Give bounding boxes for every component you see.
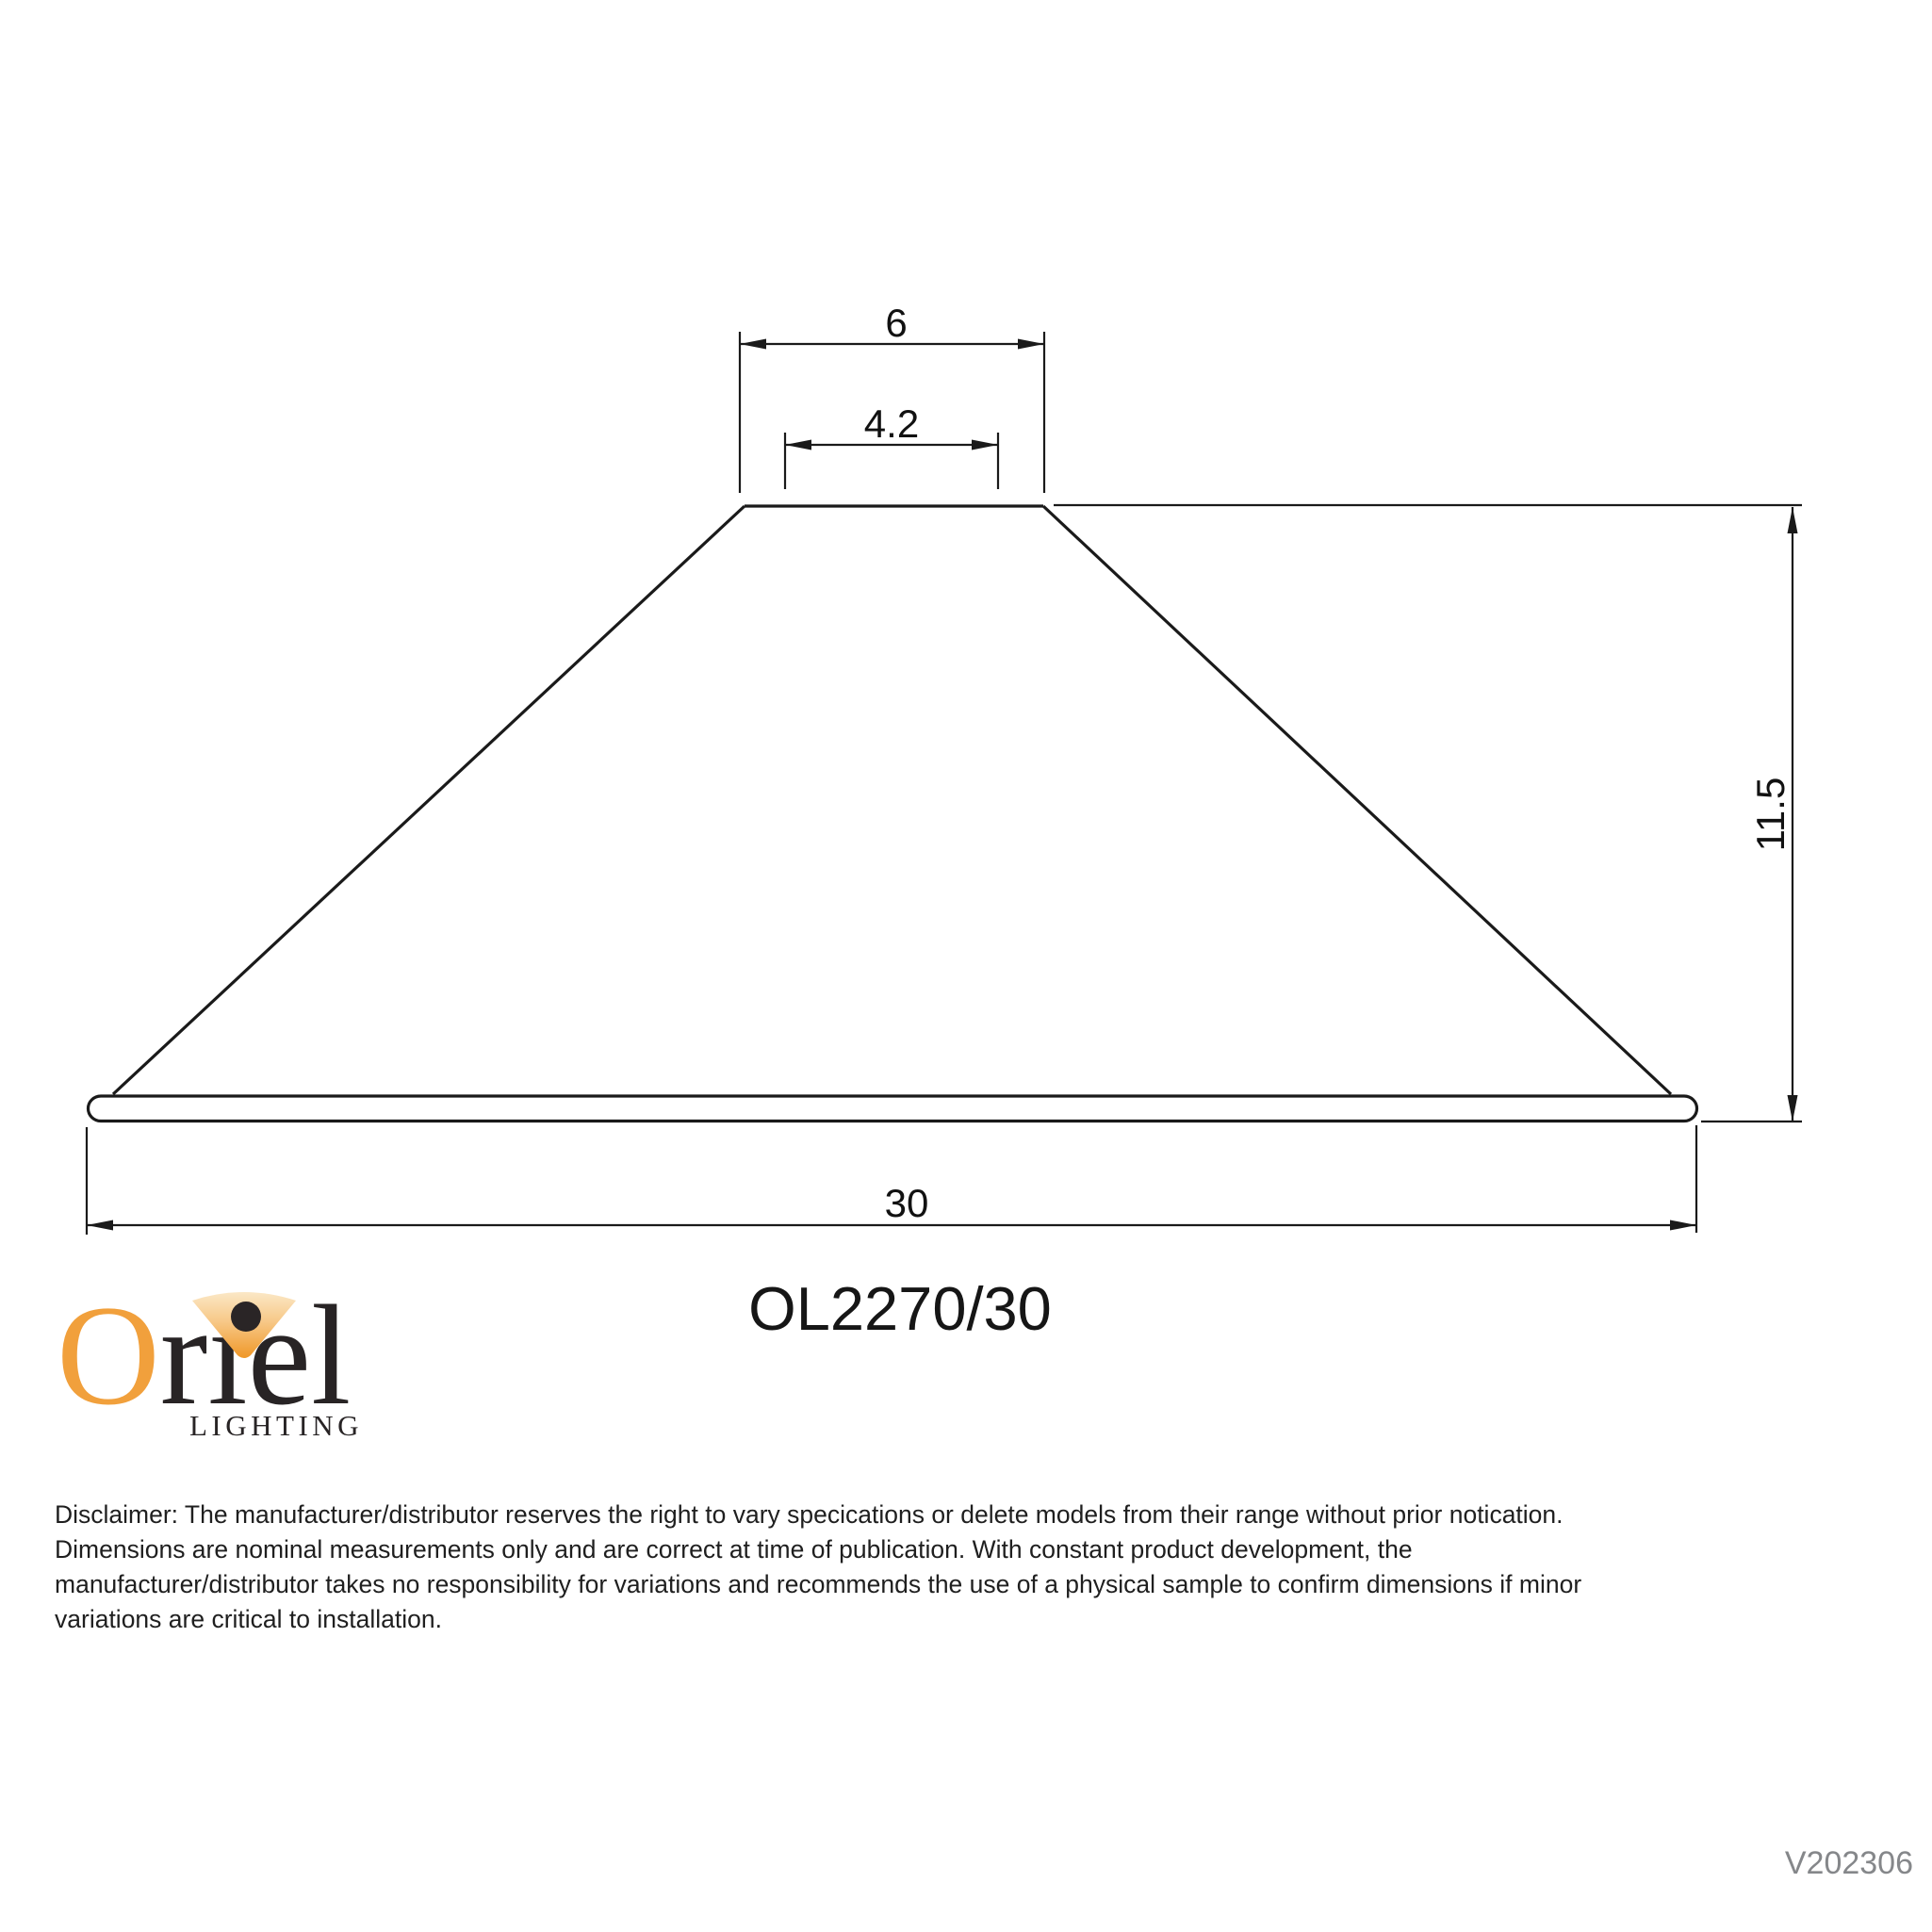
oriel-logo: Orıel LIGHTING <box>57 1276 363 1442</box>
disclaimer-line-2: Dimensions are nominal measurements only… <box>55 1535 1413 1564</box>
dim-label-height: 11.5 <box>1748 778 1793 852</box>
arrowhead-right <box>972 440 998 450</box>
shade-bottom-rim <box>89 1096 1697 1122</box>
disclaimer-line-3: manufacturer/distributor takes no respon… <box>55 1570 1581 1598</box>
technical-drawing: 6 4.2 11.5 <box>0 0 1932 1932</box>
dimension-bottom-width: 30 <box>87 1125 1696 1235</box>
arrowhead-left <box>87 1220 113 1231</box>
version-stamp: V202306 <box>1785 1845 1913 1881</box>
arrowhead-top <box>1788 507 1798 533</box>
shade-right-slant <box>1043 506 1671 1094</box>
spec-sheet-page: 6 4.2 11.5 <box>0 0 1932 1932</box>
model-code: OL2270/30 <box>748 1274 1052 1343</box>
arrowhead-right <box>1670 1220 1696 1231</box>
dim-label-bottom-width: 30 <box>885 1181 929 1225</box>
arrowhead-left <box>740 339 766 350</box>
disclaimer-line-4: variations are critical to installation. <box>55 1605 442 1633</box>
arrowhead-right <box>1018 339 1044 350</box>
arrowhead-bottom <box>1788 1095 1798 1122</box>
dim-label-top-outer: 6 <box>885 301 907 345</box>
lampshade-outline <box>89 506 1697 1122</box>
disclaimer-line-1: Disclaimer: The manufacturer/distributor… <box>55 1500 1564 1529</box>
shade-left-slant <box>113 506 745 1094</box>
logo-tagline: LIGHTING <box>189 1409 363 1442</box>
logo-letter-o: O <box>57 1276 160 1434</box>
dimension-top-inner: 4.2 <box>785 401 998 489</box>
dim-label-top-inner: 4.2 <box>864 401 919 446</box>
disclaimer: Disclaimer: The manufacturer/distributor… <box>55 1500 1581 1633</box>
dimension-height: 11.5 <box>1054 505 1802 1122</box>
bulb-dot-icon <box>231 1302 261 1332</box>
arrowhead-left <box>785 440 811 450</box>
